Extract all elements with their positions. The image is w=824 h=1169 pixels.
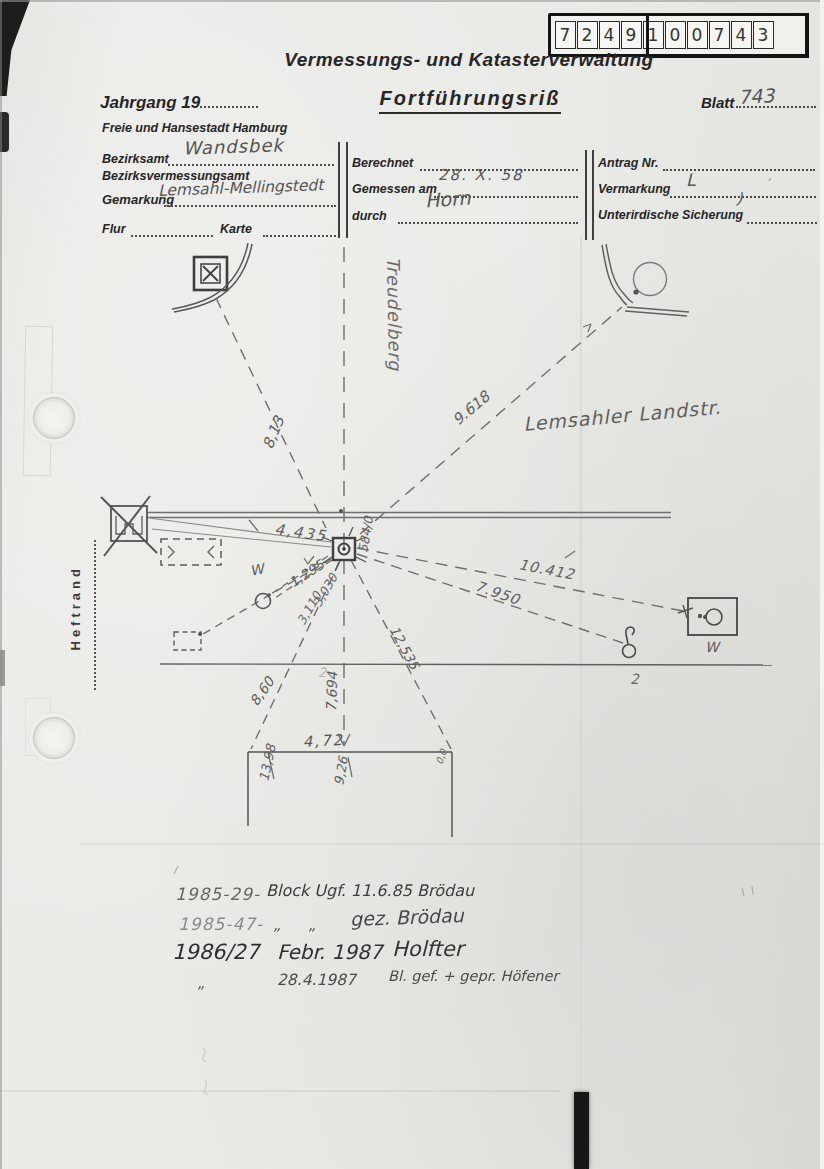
note-row2-ditto1: „	[273, 916, 281, 934]
measurement-se: 12,535	[386, 623, 423, 673]
street-edge-line	[147, 509, 671, 518]
note-row4-text: Bl. gef. + gepr. Höfener	[388, 968, 558, 984]
note-row4-ditto: „	[197, 974, 205, 992]
measurement-nw: 8,13	[259, 412, 289, 451]
street-name-horizontal: Lemsahler Landstr.	[522, 396, 722, 435]
ray-end-tick	[678, 605, 702, 618]
note-row1-text: Block Ugf. 11.6.85 Brödau	[266, 881, 474, 900]
note-row3-ref: 1986/27	[172, 940, 259, 964]
survey-sketch: Treudelberg Lemsahler Landstr. 584/0 8,1…	[0, 0, 824, 1169]
scanned-survey-form: Heftrand 7 2 4 9 1 0 0 7 4 3 Vermessungs…	[0, 0, 824, 1169]
measurement-e2: 7.950	[473, 578, 523, 609]
note-row3-name: Holfter	[392, 937, 463, 961]
boundary-stone-symbol	[623, 627, 636, 658]
boundary-circle-ne	[633, 263, 666, 296]
note-row2-ditto2: „	[308, 916, 316, 934]
street-curve-ne	[602, 244, 689, 316]
w-label-right: W	[705, 639, 721, 655]
note-row1-ref: 1985-29-	[175, 884, 260, 904]
measurement-parcel-right: 0,0	[434, 747, 450, 766]
w-label-left: W	[248, 560, 267, 579]
note-row4-date: 28.4.1987	[277, 971, 356, 989]
small-dashed-rect	[174, 632, 202, 650]
monument-symbol-e	[688, 598, 737, 635]
note-row2-ref: 1985-47-	[178, 914, 263, 934]
street-axis-dashed	[338, 247, 350, 746]
monument-symbol-nw	[194, 257, 227, 290]
boundary-line-south	[160, 664, 772, 665]
note-row2-text: gez. Brödau	[350, 904, 464, 930]
note-row3-date: Febr. 1987	[277, 940, 382, 964]
point-2-faint: 2	[318, 665, 327, 680]
measurement-parcel-left: 13,98	[256, 741, 279, 782]
ray-arrowhead	[583, 324, 591, 332]
street-curve-nw	[172, 243, 252, 312]
dashed-rect-symbol	[161, 539, 221, 565]
measurement-e1: 10.412	[517, 556, 576, 583]
boundary-circle-w	[256, 593, 271, 608]
street-name-vertical: Treudelberg	[383, 257, 405, 372]
crossed-box-symbol	[101, 496, 157, 556]
measurement-parcel-top: 4,72	[302, 731, 344, 751]
point-2-label: 2	[630, 671, 640, 687]
measurement-rays	[149, 298, 683, 749]
point-number-label: 584/0	[355, 514, 376, 553]
measurement-parcel-mid: 9,26	[331, 754, 351, 787]
